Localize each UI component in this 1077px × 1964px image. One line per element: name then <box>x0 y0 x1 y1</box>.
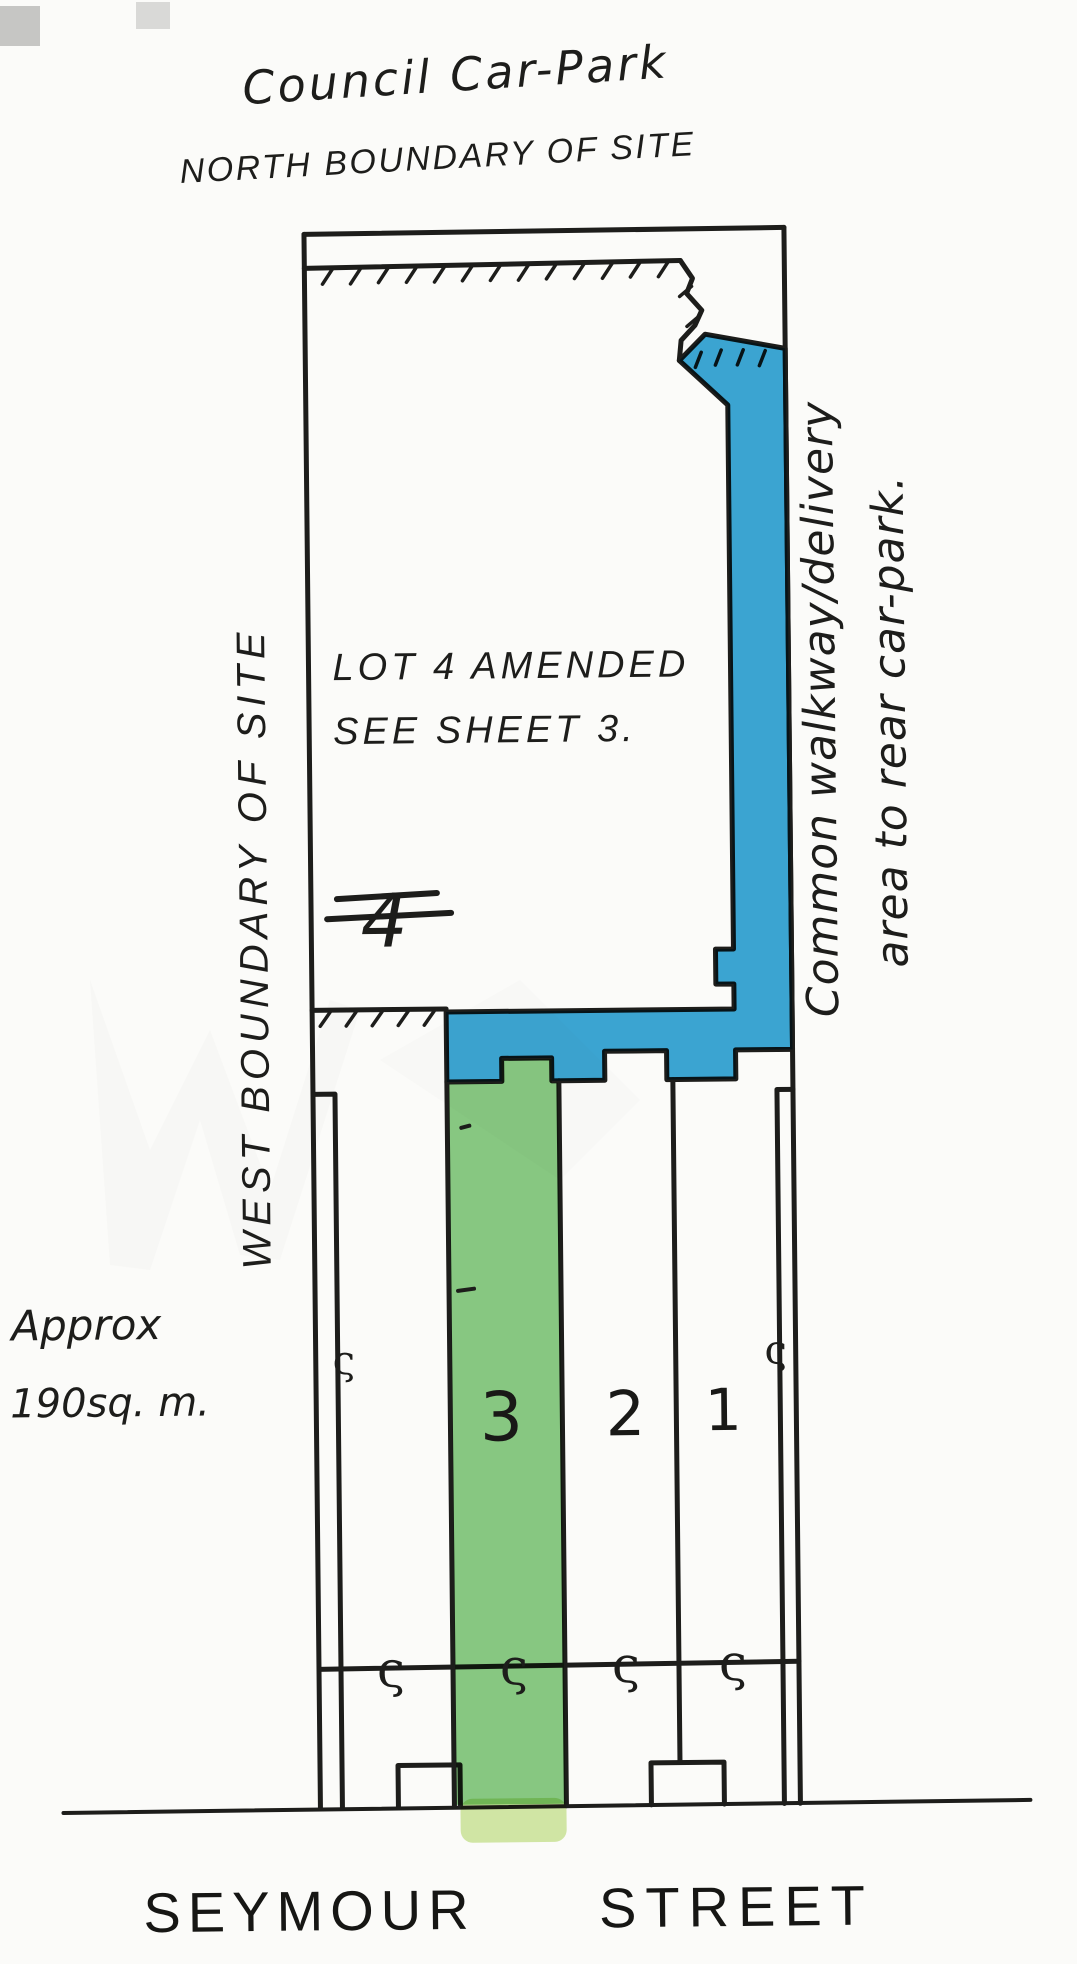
walkway-note-line1: Common walkway/delivery <box>792 401 849 1018</box>
scan-smudge <box>0 6 40 46</box>
page-title: Council Car-Park <box>241 34 670 115</box>
approx-area-line1: Approx <box>8 1300 163 1351</box>
street-step <box>398 1765 460 1808</box>
north-boundary-label: NORTH BOUNDARY OF SITE <box>179 125 697 191</box>
lot4-south-line <box>312 1009 446 1010</box>
hook-mark: ς <box>719 1634 748 1692</box>
lot4-crossed-out-mark: 4 <box>360 878 408 964</box>
lot1-lot2-divider <box>673 1080 680 1763</box>
site-west-boundary-line <box>304 234 320 1808</box>
hook-mark: ς <box>377 1640 406 1698</box>
hook-mark: ς <box>764 1327 787 1373</box>
hook-mark: ς <box>332 1338 355 1384</box>
hook-mark: ς <box>612 1636 641 1694</box>
scanned-site-plan-page: Council Car-Park NORTH BOUNDARY OF SITE … <box>0 0 1077 1964</box>
scan-smudge <box>136 2 170 29</box>
street-name-word1: SEYMOUR <box>143 1878 476 1944</box>
lot3-number: 3 <box>479 1378 523 1457</box>
lot2-number: 2 <box>605 1377 645 1450</box>
approx-area-line2: 190sq. m. <box>10 1379 210 1427</box>
lot4-note-line2: SEE SHEET 3. <box>333 708 637 753</box>
street-step <box>651 1762 724 1805</box>
street-name-word2: STREET <box>599 1874 875 1940</box>
lot4-note-line1: LOT 4 AMENDED <box>332 643 689 689</box>
lot1-number: 1 <box>704 1376 742 1444</box>
site-top-edge <box>304 227 784 234</box>
site-plan-svg: Council Car-Park NORTH BOUNDARY OF SITE … <box>0 0 1077 1964</box>
walkway-note-line2: area to rear car-park. <box>863 475 919 968</box>
hook-mark: ς <box>500 1638 529 1696</box>
west-boundary-label: WEST BOUNDARY OF SITE <box>229 626 280 1270</box>
